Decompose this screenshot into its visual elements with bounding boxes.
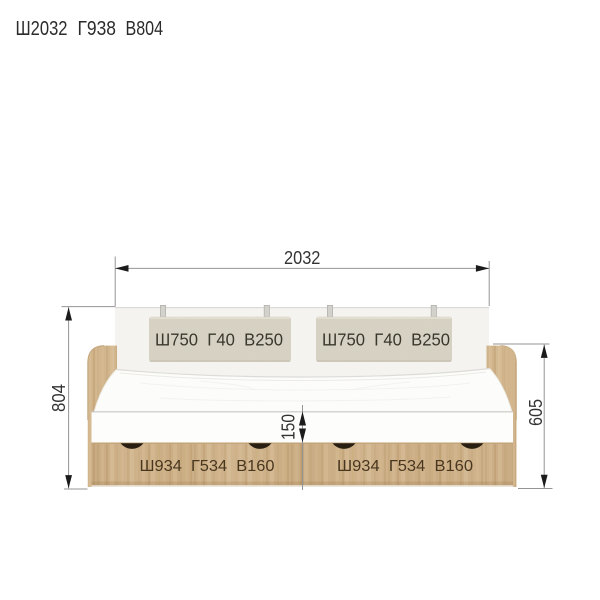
svg-text:В804: В804 <box>126 18 164 40</box>
svg-text:Ш750 Г40 В250: Ш750 Г40 В250 <box>155 329 283 349</box>
svg-text:Ш934 Г534 В160: Ш934 Г534 В160 <box>337 458 473 475</box>
svg-text:2032: 2032 <box>284 248 320 268</box>
svg-text:Ш750 Г40 В250: Ш750 Г40 В250 <box>322 329 450 349</box>
svg-text:Ш934 Г534 В160: Ш934 Г534 В160 <box>140 458 275 475</box>
svg-text:605: 605 <box>526 399 546 426</box>
svg-text:150: 150 <box>279 414 299 440</box>
svg-text:Ш2032: Ш2032 <box>16 18 68 40</box>
svg-text:Г938: Г938 <box>78 18 117 40</box>
svg-text:804: 804 <box>49 384 69 412</box>
